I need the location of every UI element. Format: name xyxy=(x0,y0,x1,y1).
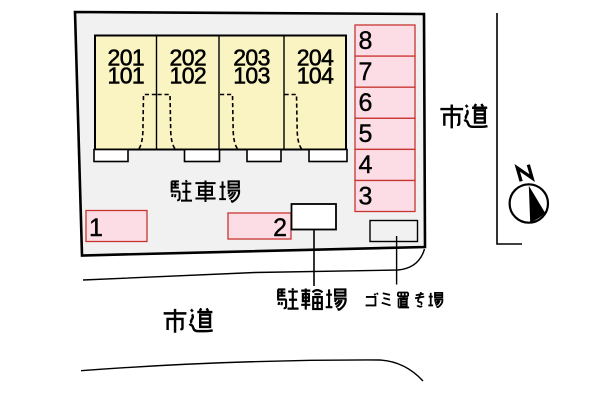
svg-text:104: 104 xyxy=(297,63,334,89)
svg-text:3: 3 xyxy=(359,183,373,211)
svg-text:6: 6 xyxy=(359,89,373,117)
svg-text:103: 103 xyxy=(233,63,270,89)
svg-text:1: 1 xyxy=(89,214,103,242)
svg-text:102: 102 xyxy=(170,63,207,89)
svg-text:8: 8 xyxy=(359,27,373,55)
svg-text:2: 2 xyxy=(273,214,287,242)
svg-text:101: 101 xyxy=(108,63,145,89)
svg-text:4: 4 xyxy=(359,151,373,179)
svg-text:5: 5 xyxy=(359,120,373,148)
svg-text:7: 7 xyxy=(359,58,373,86)
